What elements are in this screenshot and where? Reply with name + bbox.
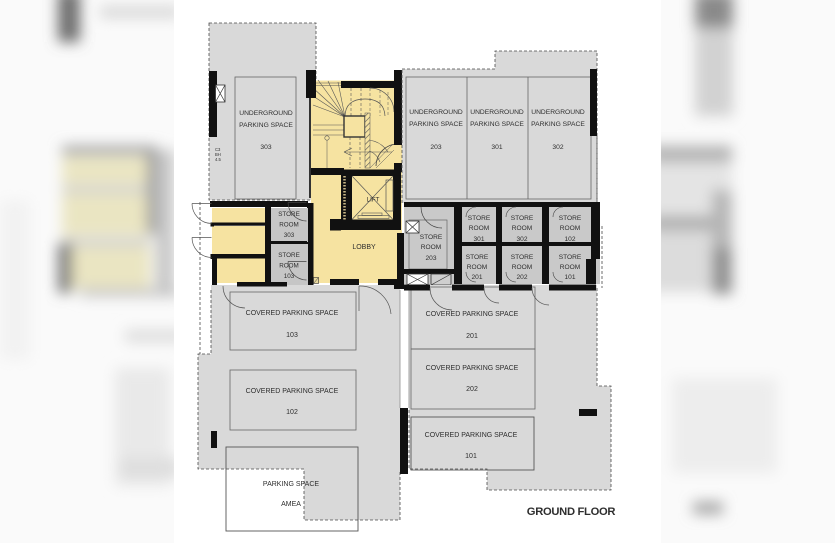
svg-text:COVERED PARKING SPACE: COVERED PARKING SPACE: [426, 311, 519, 318]
svg-text:302: 302: [552, 144, 563, 151]
svg-text:ROOM: ROOM: [467, 264, 488, 271]
svg-text:COVERED PARKING SPACE: COVERED PARKING SPACE: [246, 310, 339, 317]
svg-text:4.5: 4.5: [215, 157, 221, 162]
svg-text:GROUND FLOOR: GROUND FLOOR: [527, 506, 616, 518]
svg-text:LOBBY: LOBBY: [352, 244, 376, 251]
svg-text:101: 101: [465, 453, 477, 460]
svg-text:102: 102: [286, 409, 298, 416]
svg-text:UNDERGROUND: UNDERGROUND: [239, 110, 293, 117]
svg-text:STORE: STORE: [559, 254, 582, 261]
svg-text:202: 202: [516, 274, 527, 281]
svg-text:PARKING SPACE: PARKING SPACE: [263, 481, 319, 488]
svg-text:301: 301: [473, 236, 484, 243]
svg-text:PARKING SPACE: PARKING SPACE: [470, 121, 524, 128]
svg-text:302: 302: [516, 236, 527, 243]
svg-text:UNDERGROUND: UNDERGROUND: [409, 109, 463, 116]
svg-text:ROOM: ROOM: [279, 222, 299, 229]
svg-text:ROOM: ROOM: [421, 244, 442, 251]
svg-text:STORE: STORE: [559, 215, 582, 222]
svg-text:STORE: STORE: [468, 215, 491, 222]
svg-text:203: 203: [425, 255, 436, 262]
svg-text:STORE: STORE: [420, 234, 443, 241]
svg-text:202: 202: [466, 386, 478, 393]
svg-text:203: 203: [430, 144, 441, 151]
svg-text:PARKING SPACE: PARKING SPACE: [239, 122, 293, 129]
svg-text:COVERED PARKING SPACE: COVERED PARKING SPACE: [425, 432, 518, 439]
svg-text:201: 201: [466, 333, 478, 340]
svg-text:STORE: STORE: [511, 254, 534, 261]
svg-text:101: 101: [564, 274, 575, 281]
svg-text:303: 303: [284, 232, 295, 239]
svg-text:STORE: STORE: [278, 252, 300, 259]
svg-text:STORE: STORE: [278, 211, 300, 218]
svg-text:ROOM: ROOM: [512, 225, 533, 232]
svg-text:103: 103: [286, 332, 298, 339]
svg-text:PARKING SPACE: PARKING SPACE: [409, 121, 463, 128]
svg-text:STORE: STORE: [511, 215, 534, 222]
svg-text:301: 301: [491, 144, 502, 151]
svg-text:ROOM: ROOM: [512, 264, 533, 271]
svg-text:ROOM: ROOM: [469, 225, 490, 232]
svg-text:PARKING SPACE: PARKING SPACE: [531, 121, 585, 128]
svg-text:201: 201: [471, 274, 482, 281]
svg-text:102: 102: [564, 236, 575, 243]
svg-text:UNDERGROUND: UNDERGROUND: [470, 109, 524, 116]
svg-text:303: 303: [260, 144, 271, 151]
svg-text:ROOM: ROOM: [560, 264, 581, 271]
svg-text:COVERED PARKING SPACE: COVERED PARKING SPACE: [426, 365, 519, 372]
svg-text:COVERED PARKING SPACE: COVERED PARKING SPACE: [246, 388, 339, 395]
svg-text:UNDERGROUND: UNDERGROUND: [531, 109, 585, 116]
svg-text:LIFT: LIFT: [367, 197, 380, 204]
svg-text:STORE: STORE: [466, 254, 489, 261]
svg-text:ROOM: ROOM: [560, 225, 581, 232]
svg-text:AMEA: AMEA: [281, 501, 301, 508]
svg-text:ROOM: ROOM: [279, 263, 299, 270]
